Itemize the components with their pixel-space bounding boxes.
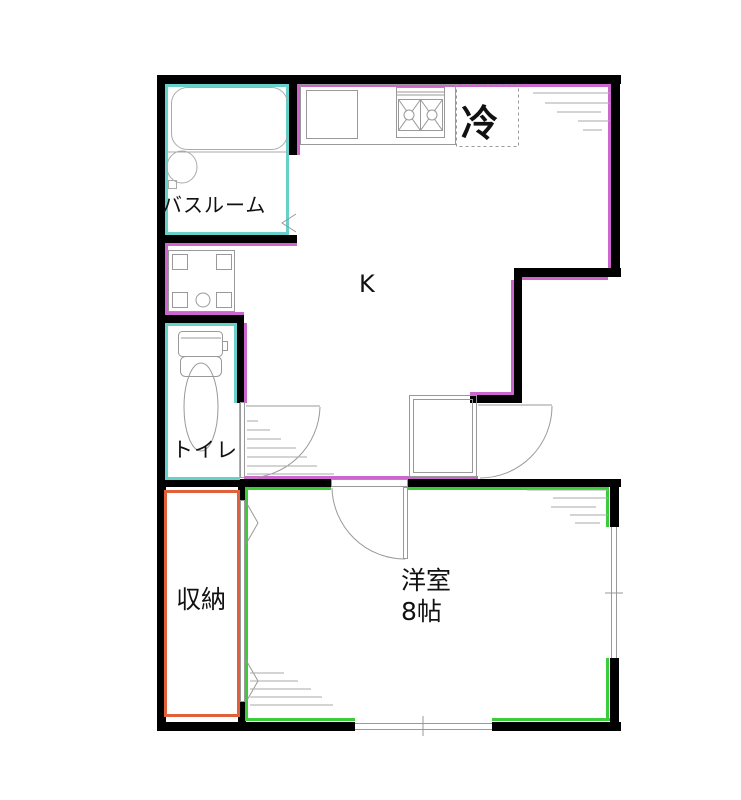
entrance-door-icon: [410, 396, 553, 479]
window-right-icon: [605, 527, 623, 658]
kitchen-label: K: [359, 270, 375, 298]
bathroom-sink-icon: [167, 151, 197, 189]
linework-layer: [0, 0, 741, 800]
bathtub-icon: [168, 88, 289, 153]
floor-plan: バスルーム 冷 K トイレ 収納 洋室 8帖: [0, 0, 741, 800]
storage-label: 収納: [176, 580, 226, 616]
toilet-label: トイレ: [172, 434, 238, 464]
window-bottom-icon: [355, 716, 492, 736]
western-room-label: 洋室 8帖: [401, 565, 451, 627]
stove-icon: [397, 88, 445, 138]
storage-folding-door-icon: [241, 501, 259, 703]
refrigerator-label: 冷: [461, 93, 498, 147]
kitchen-corner-hatch: [533, 93, 610, 130]
western-corner-hatch-top: [527, 490, 608, 523]
western-room-label-line2: 8帖: [401, 596, 451, 627]
bathroom-door-icon: [282, 214, 296, 232]
western-room-label-line1: 洋室: [401, 565, 451, 596]
washing-machine-icon: [169, 251, 235, 312]
toilet-door-icon: [241, 403, 335, 479]
bathroom-label: バスルーム: [162, 189, 266, 218]
western-corner-hatch-bottom: [250, 673, 333, 705]
western-room-door-icon: [332, 480, 408, 560]
